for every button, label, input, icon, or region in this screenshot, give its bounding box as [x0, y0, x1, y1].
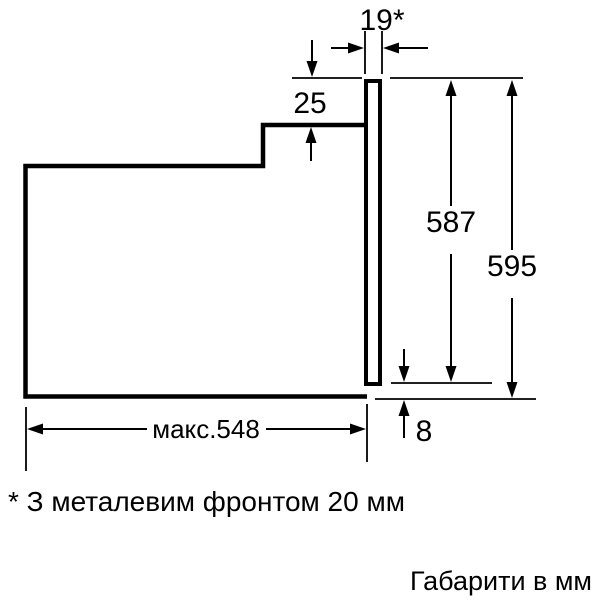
dim-front-height: 587	[391, 80, 492, 383]
arrow-left-icon	[383, 43, 399, 54]
arrow-down-icon	[507, 382, 518, 398]
dim-front-thickness: 19*	[331, 4, 428, 74]
units-note-text: Габарити в мм	[410, 566, 592, 596]
arrow-right-icon	[350, 424, 366, 435]
dim-587-label: 587	[426, 206, 476, 239]
diagram-canvas: 19* 25 587 595	[0, 0, 600, 600]
dim-19-label: 19*	[359, 4, 404, 37]
dim-8-label: 8	[416, 415, 433, 448]
arrow-left-icon	[27, 424, 43, 435]
arrow-down-icon	[307, 61, 318, 77]
arrow-right-icon	[348, 43, 364, 54]
oven-body-outline	[26, 125, 368, 397]
oven-front-panel	[366, 81, 380, 384]
arrow-down-icon	[399, 366, 410, 382]
footnote-text: * З металевим фронтом 20 мм	[8, 486, 405, 517]
arrow-up-icon	[507, 80, 518, 96]
dim-595-label: 595	[487, 250, 537, 283]
dim-max-depth: макс.548	[26, 404, 367, 471]
dim-top-overhang: 25	[292, 40, 362, 161]
dim-total-height: 595	[375, 80, 537, 399]
arrow-up-icon	[306, 127, 317, 143]
dim-548-label: макс.548	[152, 414, 260, 444]
arrow-down-icon	[446, 366, 457, 382]
arrow-up-icon	[446, 80, 457, 96]
arrow-up-icon	[399, 400, 410, 416]
oven-dimension-diagram: 19* 25 587 595	[0, 0, 600, 600]
dim-25-label: 25	[293, 87, 326, 120]
